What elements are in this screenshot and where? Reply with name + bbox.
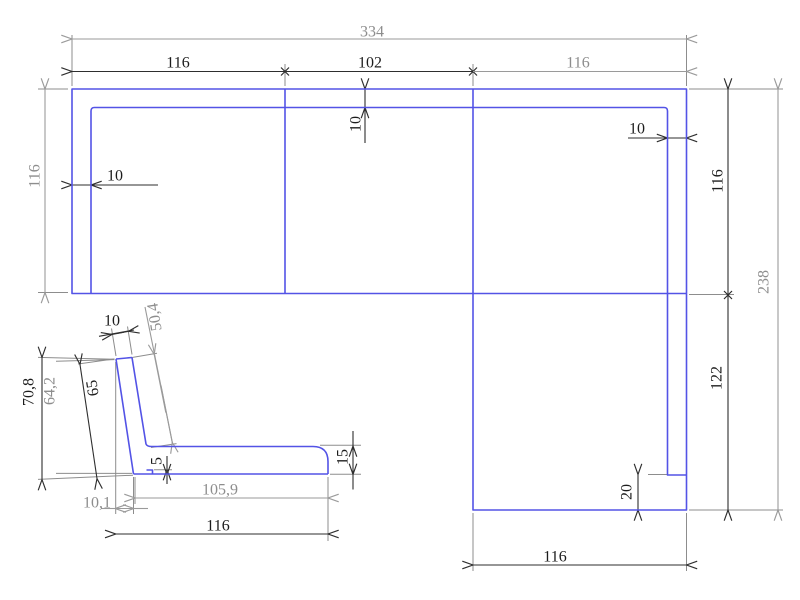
plan-backrest-inner-line (91, 108, 687, 476)
dim-plan-left-depth: 116 (27, 164, 44, 187)
dim-side-back-thickness: 10 (104, 313, 120, 330)
side-backrest-outer (116, 359, 134, 474)
dim-plan-right-wall: 10 (629, 121, 645, 138)
dim-side-back-offset: 10,1 (83, 495, 111, 512)
sofa-dimension-drawing: 334 116 102 116 116 10 10 10 116 238 122… (0, 0, 800, 600)
side-backrest-cap (116, 358, 132, 360)
dim-side-total-height: 70,8 (21, 378, 38, 406)
dim-side-seat-length: 105,9 (202, 482, 238, 499)
dim-plan-left-width: 116 (166, 55, 189, 72)
dim-side-back-length: 65 (83, 379, 102, 397)
dim-side-back-inner-length: 50,4 (144, 302, 165, 332)
sofa-side-view (116, 358, 328, 475)
dim-side-base-step: 5 (149, 457, 166, 465)
dim-plan-middle-width: 102 (358, 55, 382, 72)
dim-plan-top-wall: 10 (348, 116, 365, 132)
dim-plan-right-width: 116 (566, 55, 589, 72)
dim-plan-total-width: 334 (360, 24, 384, 41)
extension-lines (38, 35, 783, 571)
dim-plan-right-depth: 116 (710, 169, 727, 192)
side-backrest-inner-seat (132, 358, 328, 475)
dim-plan-total-depth: 238 (756, 270, 773, 294)
dim-plan-chaise-depth: 122 (709, 366, 726, 390)
dim-plan-left-wall: 10 (107, 168, 123, 185)
dim-plan-chaise-width: 116 (543, 549, 566, 566)
sofa-outlines (72, 89, 687, 510)
dim-side-total-length: 116 (206, 518, 229, 535)
dim-side-seat-thickness: 15 (335, 449, 352, 465)
technical-drawing-canvas: 334 116 102 116 116 10 10 10 116 238 122… (0, 0, 800, 600)
dim-plan-foot-depth: 20 (619, 484, 636, 500)
dim-side-inner-height: 64,2 (42, 377, 59, 405)
